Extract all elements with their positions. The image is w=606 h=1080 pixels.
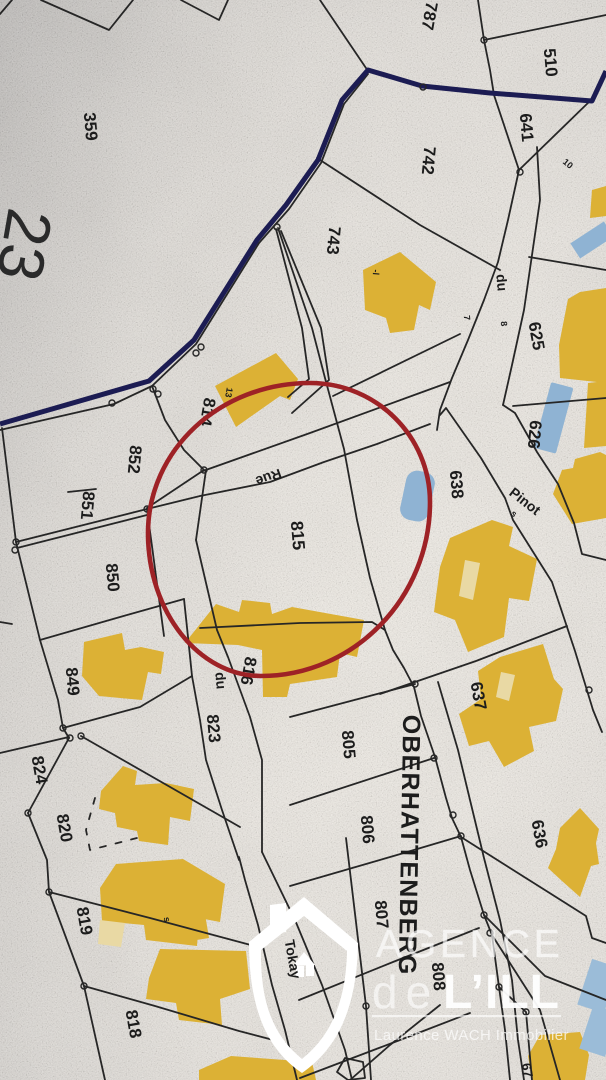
svg-text:Laurence WACH Immobilier: Laurence WACH Immobilier: [374, 1027, 569, 1044]
svg-text:641: 641: [516, 113, 537, 143]
svg-text:510: 510: [540, 48, 561, 78]
svg-text:de: de: [372, 966, 439, 1018]
svg-text:du: du: [212, 671, 229, 689]
svg-text:67: 67: [519, 1062, 536, 1079]
svg-text:850: 850: [102, 563, 123, 593]
svg-text:-l: -l: [371, 269, 381, 275]
svg-text:23: 23: [0, 204, 66, 287]
svg-text:823: 823: [203, 714, 224, 744]
svg-text:815: 815: [287, 520, 309, 551]
svg-text:638: 638: [446, 470, 467, 500]
svg-text:805: 805: [338, 730, 359, 760]
svg-text:du: du: [493, 273, 510, 291]
svg-text:AGENCE: AGENCE: [376, 923, 564, 966]
svg-text:849: 849: [62, 667, 83, 697]
svg-text:359: 359: [80, 112, 101, 142]
svg-text:806: 806: [357, 815, 378, 845]
svg-text:13: 13: [223, 387, 235, 399]
svg-text:626: 626: [524, 420, 545, 450]
svg-text:743: 743: [323, 226, 344, 256]
svg-text:L’ILL: L’ILL: [443, 966, 560, 1019]
svg-text:852: 852: [124, 445, 145, 475]
svg-text:7: 7: [462, 315, 472, 321]
svg-text:851: 851: [77, 491, 98, 521]
svg-text:8: 8: [499, 321, 509, 327]
svg-text:742: 742: [418, 146, 439, 176]
